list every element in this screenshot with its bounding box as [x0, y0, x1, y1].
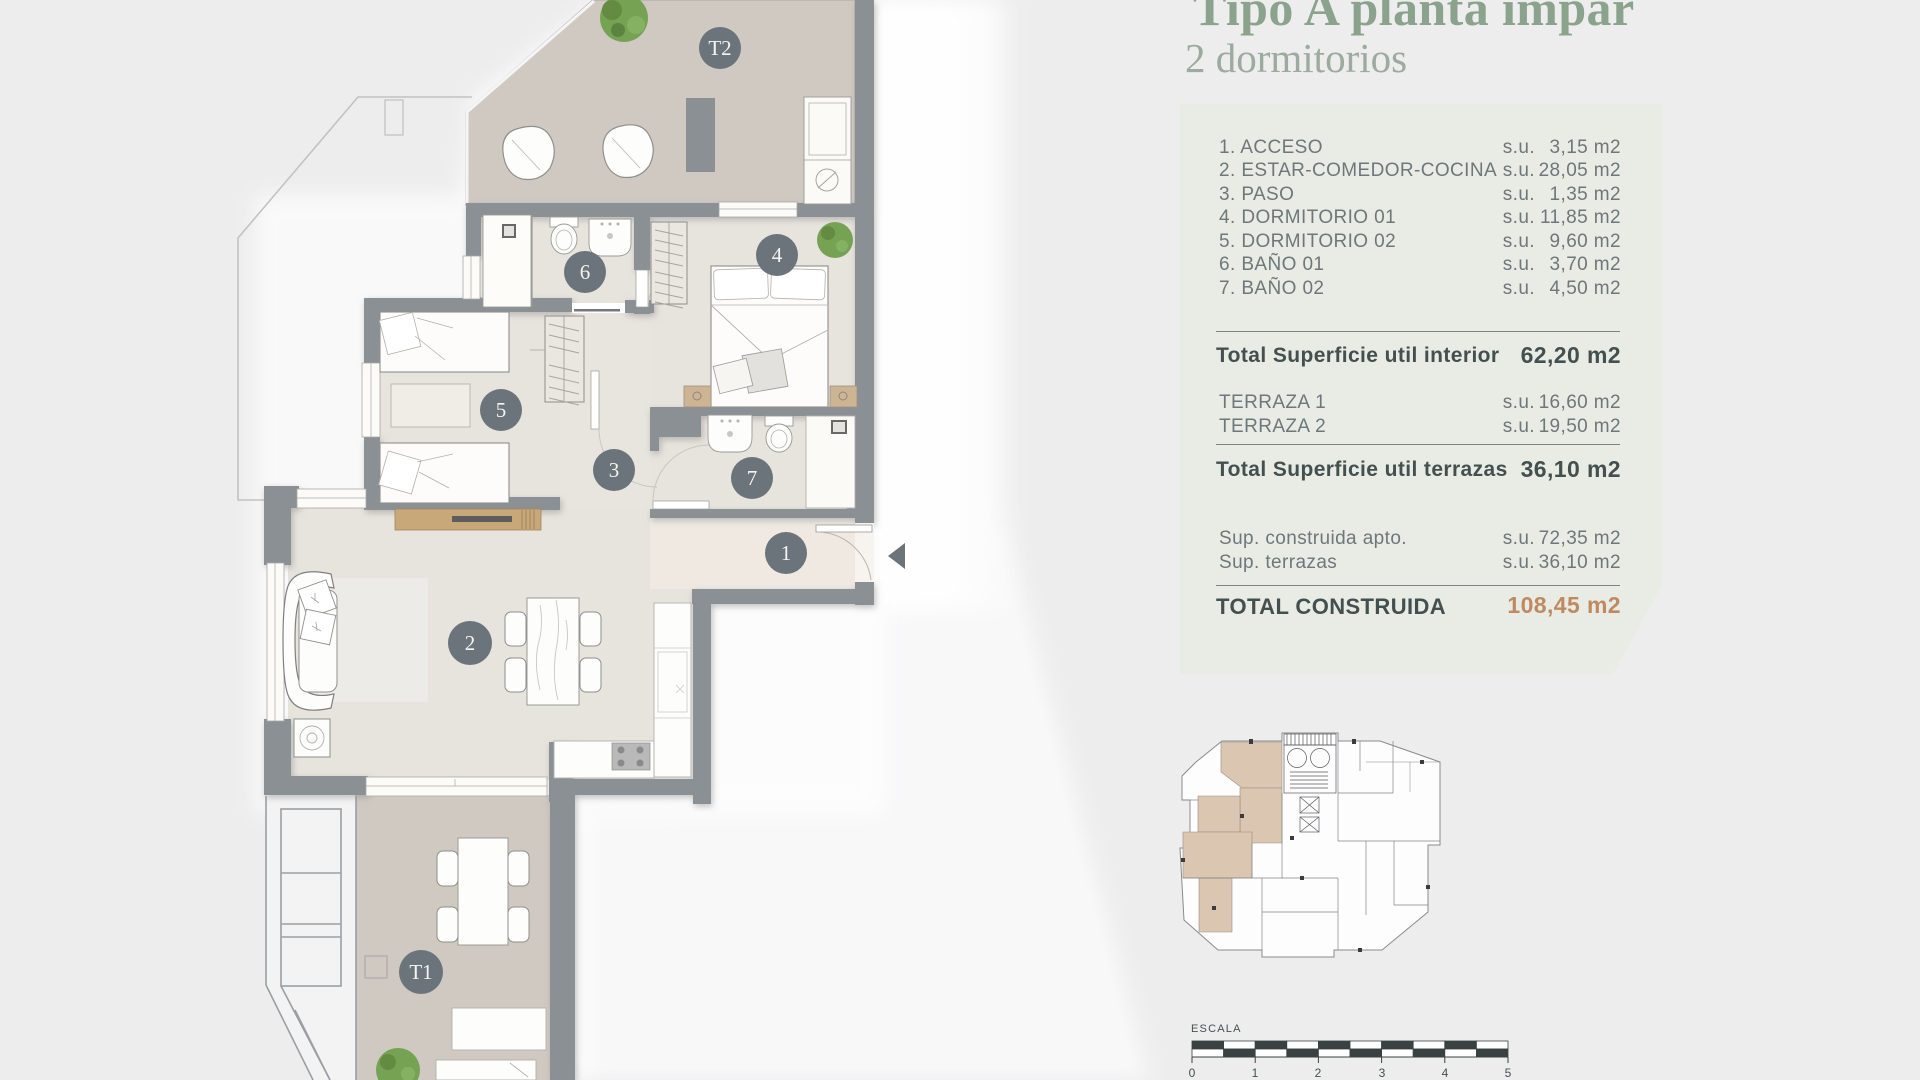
svg-text:4: 4: [772, 243, 783, 267]
svg-text:T1: T1: [409, 960, 432, 984]
svg-text:ESCALA: ESCALA: [1191, 1023, 1242, 1035]
svg-text:1: 1: [781, 541, 792, 565]
svg-text:5: 5: [1505, 1066, 1512, 1080]
svg-text:3: 3: [609, 458, 620, 482]
svg-text:T2: T2: [708, 36, 731, 60]
svg-text:7: 7: [747, 466, 758, 490]
svg-text:1: 1: [1252, 1066, 1259, 1080]
svg-text:2: 2: [465, 631, 476, 655]
svg-text:2: 2: [1315, 1066, 1322, 1080]
svg-text:4: 4: [1442, 1066, 1449, 1080]
svg-text:5: 5: [496, 398, 507, 422]
svg-text:0: 0: [1189, 1066, 1196, 1080]
svg-text:3: 3: [1379, 1066, 1386, 1080]
svg-text:6: 6: [580, 260, 591, 284]
